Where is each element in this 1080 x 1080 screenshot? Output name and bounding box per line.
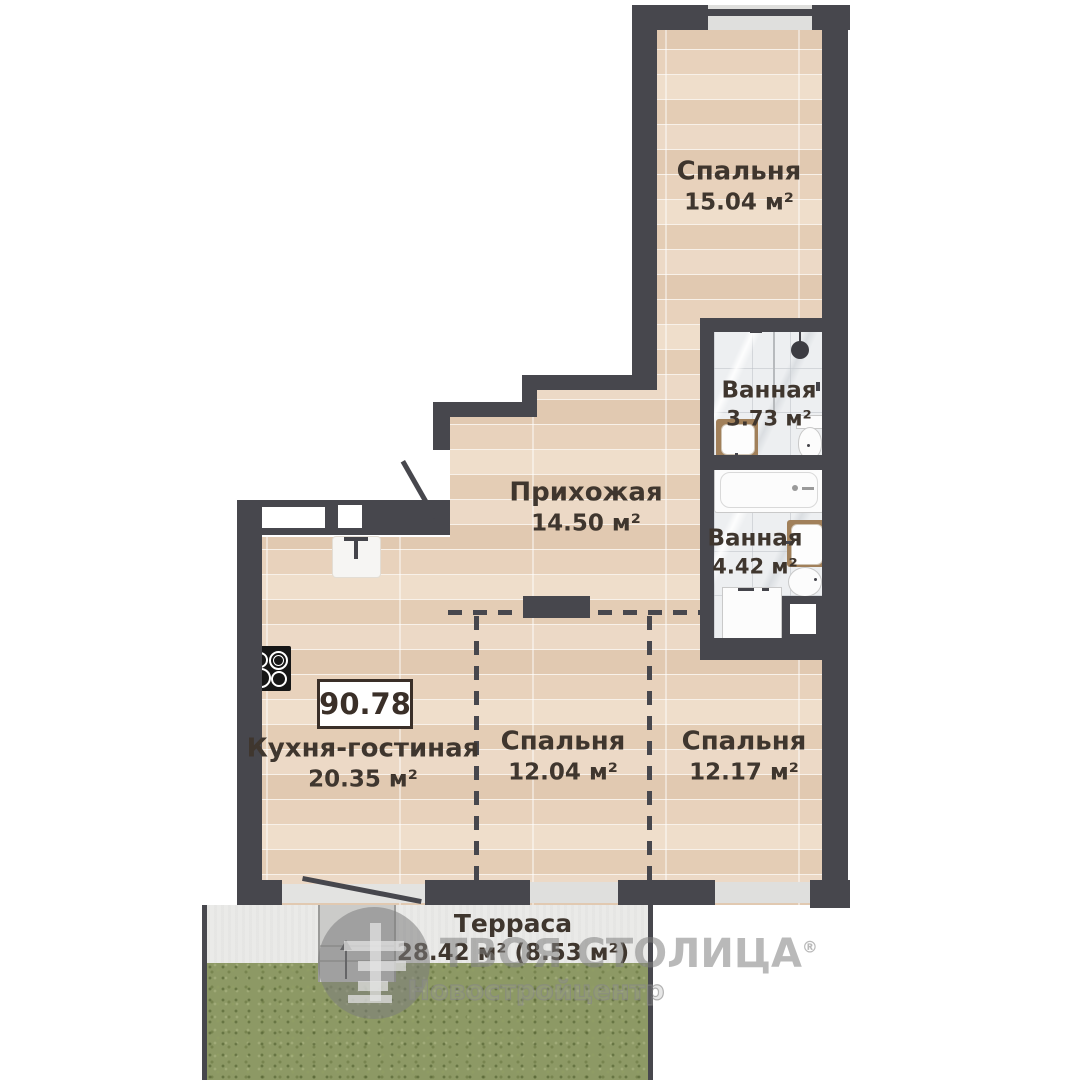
room-label-bathroom-2: Ванная 4.42 м² [707,525,802,580]
registered-mark: ® [802,938,818,957]
wall-right [822,5,848,908]
wall [522,375,657,390]
wall [810,880,850,908]
bathtub-faucet [792,485,798,491]
total-area-value: 90.78 [319,687,411,721]
window-top-glass [708,9,812,16]
toilet-button-1 [807,444,810,447]
towel-hook [816,382,820,391]
window-kitchen [252,507,325,528]
window-bottom-1 [530,882,618,903]
wall-bath-left [700,318,714,640]
wall-left [237,500,262,905]
room-label-bedroom-top: Спальня 15.04 м² [677,155,802,216]
floor-plan: Спальня 15.04 м² Ванная 3.73 м² Прихожая… [0,0,1080,1080]
bathtub-inner [720,472,818,508]
window-bottom-2 [715,882,810,903]
sink-faucet-stem [354,541,358,559]
wall [425,880,530,905]
wall [618,880,715,905]
toilet-button-2 [814,578,817,581]
room-label-kitchen-living: Кухня-гостиная 20.35 м² [247,732,480,793]
bathtub-faucet-tick [802,487,814,490]
wall [632,5,657,390]
divider-hallway [448,610,705,615]
duct-niche [790,604,816,634]
wall-bath-divider [705,455,822,470]
terrace-border-left [202,905,207,1080]
washer-panel-1 [738,588,754,591]
shower-head-icon [791,341,809,359]
total-area-badge: 90.78 [317,679,413,729]
divider-bedrooms [647,616,652,882]
wall-bath-bottom [700,638,822,660]
wall-bath-top [705,318,825,332]
vent-shaft [338,505,362,528]
room-label-hallway: Прихожая 14.50 м² [509,476,662,537]
washing-machine-icon [722,587,782,639]
washer-panel-2 [762,588,769,591]
wall [237,880,282,905]
room-label-bedroom-3: Спальня 12.17 м² [682,725,807,786]
wall [433,402,450,450]
watermark-subtitle: Новостройцентр [407,976,664,1007]
room-label-bedroom-2: Спальня 12.04 м² [501,725,626,786]
watermark-brand: ТВОЯ СТОЛИЦА® [440,934,818,974]
room-label-bathroom-1: Ванная 3.73 м² [721,377,816,432]
